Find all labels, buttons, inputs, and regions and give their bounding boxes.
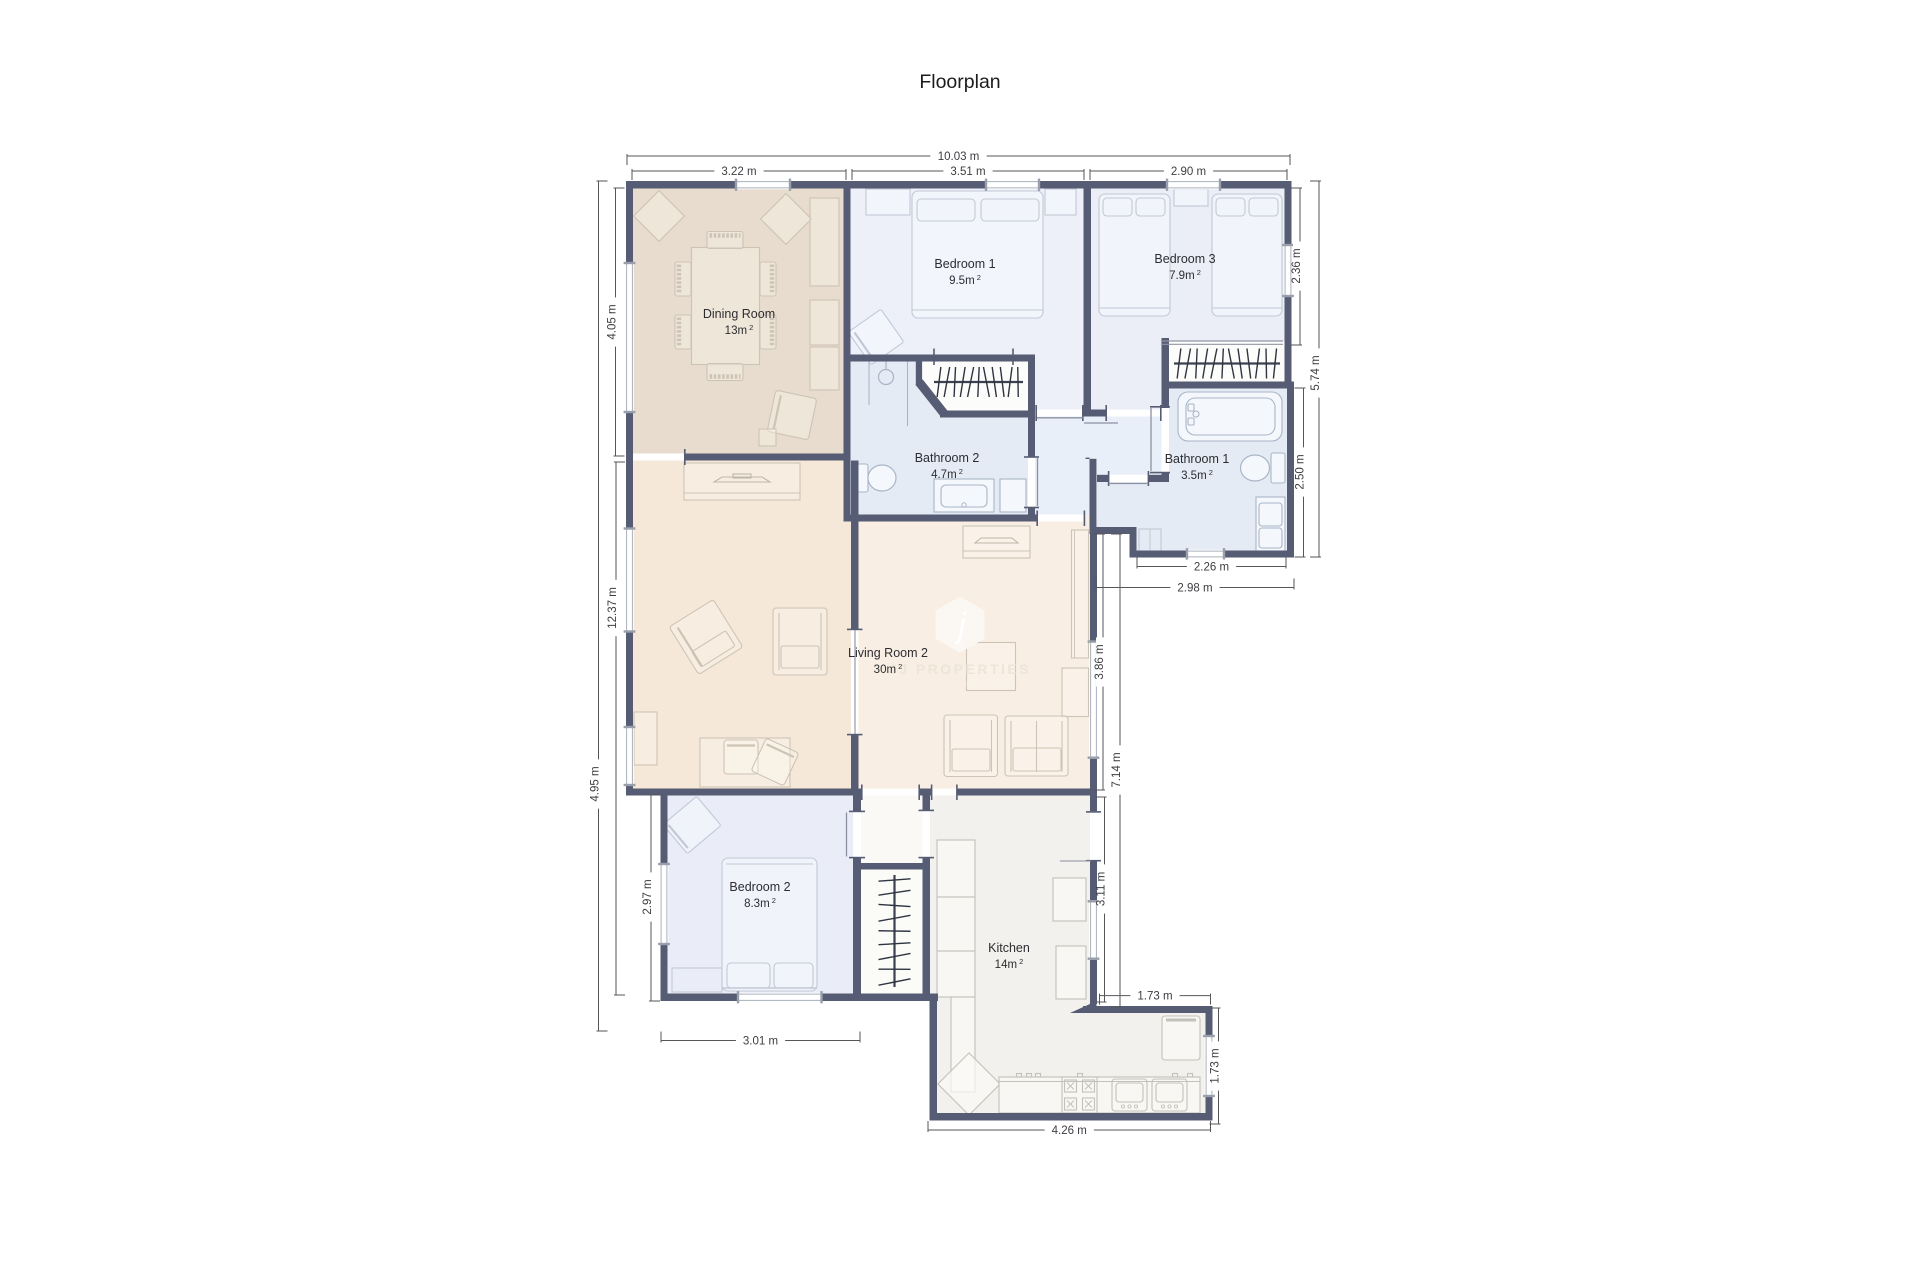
svg-text:3.11 m: 3.11 m — [1096, 872, 1108, 906]
svg-text:2.90 m: 2.90 m — [1171, 166, 1206, 178]
svg-text:3.01 m: 3.01 m — [743, 1036, 778, 1048]
svg-text:4.26 m: 4.26 m — [1052, 1125, 1087, 1137]
svg-text:3.51 m: 3.51 m — [950, 166, 985, 178]
svg-text:2.98 m: 2.98 m — [1177, 583, 1212, 595]
svg-text:Bedroom 3: Bedroom 3 — [1154, 252, 1215, 266]
svg-text:2.36 m: 2.36 m — [1291, 248, 1303, 283]
svg-text:4.95 m: 4.95 m — [590, 766, 602, 801]
svg-text:Bedroom 2: Bedroom 2 — [729, 880, 790, 894]
svg-text:2.97 m: 2.97 m — [642, 879, 654, 914]
svg-text:JJ PROPERTIES: JJ PROPERTIES — [889, 661, 1031, 677]
svg-text:7.14 m: 7.14 m — [1111, 752, 1123, 787]
svg-text:Living Room 2: Living Room 2 — [848, 646, 928, 660]
svg-text:3.22 m: 3.22 m — [721, 166, 756, 178]
svg-text:PROPERTY CONSULTANTS: PROPERTY CONSULTANTS — [906, 682, 1014, 688]
svg-text:3.86 m: 3.86 m — [1094, 644, 1106, 679]
svg-text:Floorplan: Floorplan — [919, 71, 1000, 93]
svg-text:2.50 m: 2.50 m — [1295, 454, 1307, 489]
svg-text:1.73 m: 1.73 m — [1210, 1048, 1222, 1083]
svg-text:5.74 m: 5.74 m — [1310, 355, 1322, 390]
svg-text:4.05 m: 4.05 m — [607, 304, 619, 339]
svg-text:10.03 m: 10.03 m — [938, 151, 980, 163]
svg-text:12.37 m: 12.37 m — [607, 587, 619, 629]
svg-text:Bedroom 1: Bedroom 1 — [934, 257, 995, 271]
svg-text:Kitchen: Kitchen — [988, 941, 1030, 955]
svg-text:Dining Room: Dining Room — [703, 307, 775, 321]
svg-text:Bathroom 1: Bathroom 1 — [1165, 452, 1230, 466]
svg-text:2.26 m: 2.26 m — [1194, 562, 1229, 574]
svg-text:1.73 m: 1.73 m — [1137, 991, 1172, 1003]
svg-text:Bathroom 2: Bathroom 2 — [915, 451, 980, 465]
